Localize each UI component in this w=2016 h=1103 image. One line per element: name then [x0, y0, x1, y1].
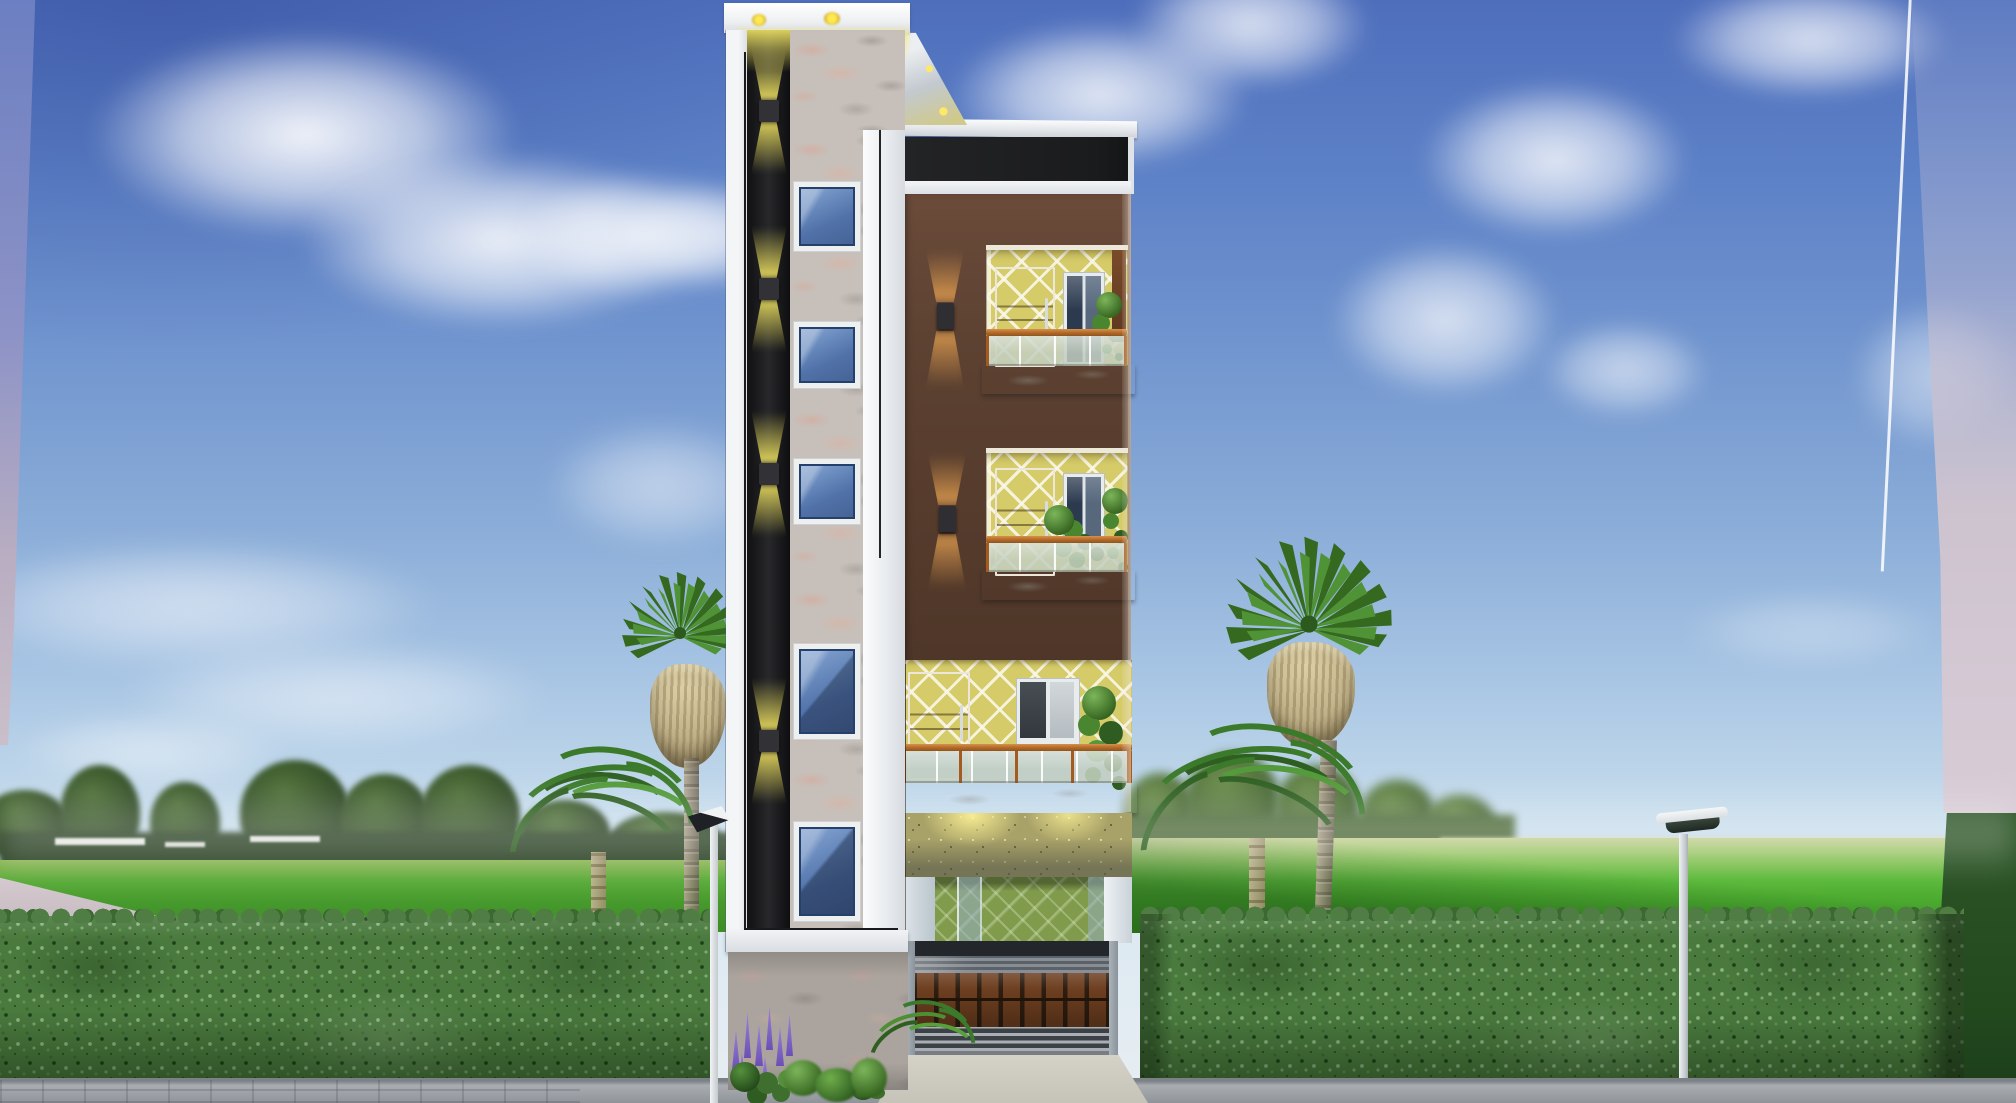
- balcony-slab-top: [982, 364, 1135, 394]
- facade-wall-light: [937, 303, 954, 329]
- hedge-left: [0, 916, 714, 1088]
- facade-corner-highlight: [1122, 194, 1131, 812]
- cloud: [1680, 590, 1940, 670]
- strip-wall-light: [759, 463, 779, 485]
- fascia-dark-band: [903, 137, 1131, 182]
- tower-frame-line: [744, 52, 746, 930]
- balcony-rail-middle: [986, 536, 1127, 543]
- sidewalk-bricks: [0, 1080, 580, 1103]
- parapet-downlight: [824, 12, 840, 25]
- door-handle: [1045, 298, 1048, 331]
- garage-top-slats: [915, 956, 1109, 973]
- lower-floor-glass: [903, 751, 1132, 783]
- green-bushes: [783, 1046, 888, 1103]
- cloud: [1540, 320, 1710, 420]
- cloud: [1420, 80, 1690, 240]
- street-lamp-pole: [1679, 834, 1688, 1103]
- strip-wall-light: [759, 730, 779, 752]
- strip-wall-light: [759, 278, 779, 300]
- door-handle: [960, 705, 963, 740]
- hedge-right: [1140, 914, 1964, 1092]
- balcony-plant: [1044, 505, 1074, 535]
- balcony-plant: [1096, 292, 1122, 318]
- granite-column-head: [790, 30, 905, 130]
- balcony-rail-top: [986, 329, 1127, 336]
- parapet-downlight: [752, 14, 766, 26]
- tower-frame-line-right: [879, 130, 881, 558]
- porch-mullion: [1088, 877, 1104, 943]
- balcony-slab-middle: [982, 570, 1135, 600]
- lower-floor-slab: [898, 783, 1137, 813]
- balcony-lintel: [986, 448, 1128, 453]
- balcony-plant: [1082, 686, 1116, 720]
- facade-wall-light: [939, 506, 956, 532]
- tower-white-column: [863, 130, 905, 952]
- balcony-glass-middle: [986, 543, 1127, 572]
- fan-palm-crown-right: [1216, 528, 1402, 660]
- stone-feature-band: [903, 813, 1132, 877]
- tower-window-4: [793, 643, 861, 740]
- balcony-glass-top: [986, 336, 1127, 366]
- tower-window-3: [793, 458, 861, 525]
- strip-wall-light: [759, 100, 779, 122]
- architectural-render-scene: [0, 0, 2016, 1103]
- solar-path-light-pole: [710, 820, 718, 1103]
- tower-window-5: [793, 821, 861, 922]
- garage-jamb: [1109, 941, 1118, 1055]
- lower-floor-window: [1016, 678, 1080, 748]
- fascia-white-band: [903, 181, 1131, 194]
- porch-mullion: [957, 877, 982, 943]
- tower-bottom-band: [726, 930, 908, 952]
- lower-floor-rail: [903, 744, 1132, 751]
- porch-pilaster: [1104, 877, 1132, 943]
- balcony-lintel: [986, 245, 1128, 250]
- cloud: [1330, 240, 1560, 400]
- tower-window-2: [793, 321, 861, 389]
- tower-black-strip: [747, 30, 790, 930]
- tower-window-1: [793, 181, 861, 252]
- street-lamp: [1650, 800, 1740, 1103]
